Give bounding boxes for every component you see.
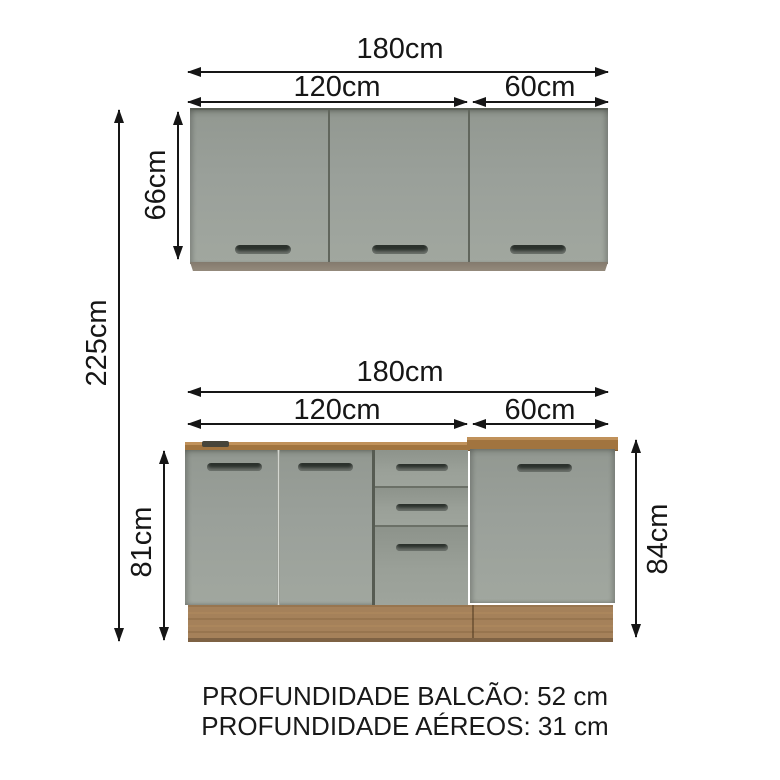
upper-cabinet-bottom-panel xyxy=(190,262,608,271)
dim-label-base-left-width: 120cm xyxy=(267,395,407,425)
dim-label-base-height-right: 84cm xyxy=(643,479,673,599)
dim-line-upper-left-width xyxy=(188,101,467,103)
base-cabinet-door-2 xyxy=(280,450,372,605)
dim-label-base-total-width: 180cm xyxy=(330,357,470,387)
dim-line-base-height-left xyxy=(163,451,165,640)
dim-label-upper-total-width: 180cm xyxy=(330,34,470,64)
arrowhead-right-icon xyxy=(454,419,468,429)
arrowhead-up-icon xyxy=(159,450,169,464)
upper-cabinet-door-center xyxy=(328,110,468,264)
dim-label-overall-height: 225cm xyxy=(82,283,112,403)
base-cabinet-door-1 xyxy=(185,450,277,605)
arrowhead-up-icon xyxy=(173,111,183,125)
drawer-handle xyxy=(396,464,448,471)
arrowhead-left-icon xyxy=(187,97,201,107)
arrowhead-left-icon xyxy=(187,67,201,77)
arrowhead-down-icon xyxy=(114,628,124,642)
arrowhead-right-icon xyxy=(595,419,609,429)
upper-cabinet xyxy=(190,108,608,271)
kickboard-seam xyxy=(472,605,474,638)
drawer-handle xyxy=(396,504,448,511)
drawer-1 xyxy=(375,450,468,488)
upper-cabinet-door-left xyxy=(190,110,328,264)
arrowhead-down-icon xyxy=(631,624,641,638)
arrowhead-down-icon xyxy=(159,627,169,641)
upper-cabinet-front xyxy=(190,108,608,264)
door-handle xyxy=(517,464,572,472)
base-cabinet-kickboard xyxy=(188,605,613,642)
dim-line-base-total-width xyxy=(188,391,608,393)
arrowhead-left-icon xyxy=(472,419,486,429)
door-handle xyxy=(372,245,428,254)
arrowhead-down-icon xyxy=(173,246,183,260)
dim-line-upper-right-width xyxy=(473,101,608,103)
arrowhead-right-icon xyxy=(595,97,609,107)
drawer-stack xyxy=(375,450,468,605)
arrowhead-right-icon xyxy=(454,97,468,107)
arrowhead-up-icon xyxy=(631,439,641,453)
depth-aereos-text: PROFUNDIDADE AÉREOS: 31 cm xyxy=(155,711,655,741)
dim-line-overall-height xyxy=(118,110,120,641)
door-handle xyxy=(235,245,291,254)
dim-label-base-height-left: 81cm xyxy=(127,482,157,602)
arrowhead-up-icon xyxy=(114,109,124,123)
base-cabinet-left-unit xyxy=(185,450,468,605)
door-handle xyxy=(298,463,353,471)
arrowhead-left-icon xyxy=(187,419,201,429)
dim-label-upper-left-width: 120cm xyxy=(267,72,407,102)
dim-label-base-right-width: 60cm xyxy=(470,395,610,425)
kitchen-cabinet-dimension-diagram: 180cm 120cm 60cm 66cm 225cm xyxy=(0,0,780,780)
drawer-2 xyxy=(375,488,468,527)
door-handle xyxy=(207,463,262,471)
dim-line-base-right-width xyxy=(473,423,608,425)
arrowhead-left-icon xyxy=(187,387,201,397)
depth-info: PROFUNDIDADE BALCÃO: 52 cm PROFUNDIDADE … xyxy=(155,681,655,741)
door-handle xyxy=(510,245,566,254)
dim-label-upper-right-width: 60cm xyxy=(470,72,610,102)
arrowhead-left-icon xyxy=(472,97,486,107)
base-cabinet-right-unit xyxy=(470,449,615,603)
countertop-notch xyxy=(202,441,229,447)
dim-line-upper-height xyxy=(177,112,179,259)
drawer-handle xyxy=(396,544,448,551)
drawer-3 xyxy=(375,527,468,605)
depth-balcao-text: PROFUNDIDADE BALCÃO: 52 cm xyxy=(155,681,655,711)
dim-line-base-height-right xyxy=(635,440,637,637)
upper-cabinet-door-right xyxy=(468,110,608,264)
dim-label-upper-height: 66cm xyxy=(141,125,171,245)
dim-line-base-left-width xyxy=(188,423,467,425)
